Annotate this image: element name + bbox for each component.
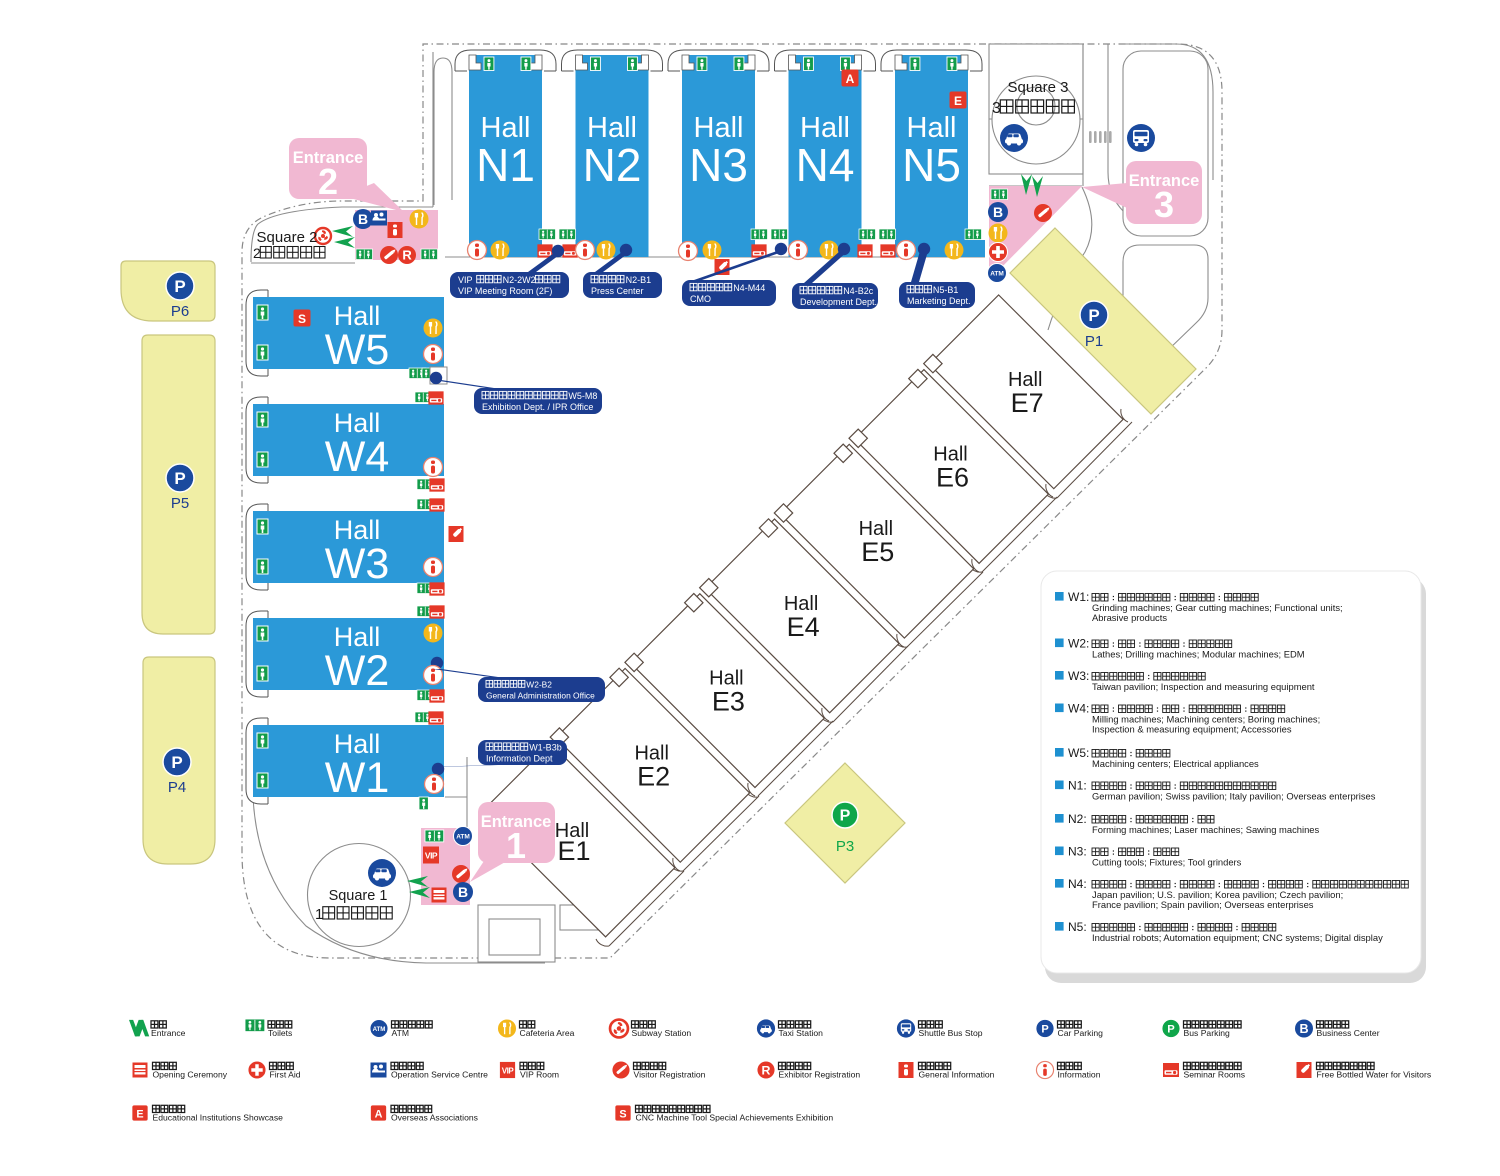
svg-text:W5-M8: W5-M8 — [568, 391, 597, 401]
svg-text:W5: W5 — [325, 326, 390, 374]
svg-text:Machining centers; Electrical: Machining centers; Electrical appliances — [1092, 758, 1259, 769]
svg-text:Development Dept.: Development Dept. — [800, 297, 877, 307]
svg-text:P5: P5 — [171, 495, 189, 512]
svg-text:Free Bottled Water for Visitor: Free Bottled Water for Visitors — [1317, 1070, 1432, 1080]
svg-text:N2:: N2: — [1068, 812, 1087, 826]
svg-text:P6: P6 — [171, 303, 189, 320]
svg-text:Car Parking: Car Parking — [1058, 1028, 1104, 1038]
svg-text:Forming machines; Laser machin: Forming machines; Laser machines; Sawing… — [1092, 824, 1319, 835]
svg-text:General Administration Office: General Administration Office — [486, 691, 595, 701]
svg-text:Square 1: Square 1 — [329, 888, 388, 904]
svg-text:Cutting tools; Fixtures; Tool: Cutting tools; Fixtures; Tool grinders — [1092, 857, 1242, 868]
svg-text:W2: W2 — [325, 647, 390, 695]
svg-text:Business Center: Business Center — [1317, 1028, 1380, 1038]
svg-text:N5:: N5: — [1068, 920, 1087, 934]
svg-text:1: 1 — [315, 906, 323, 923]
svg-text:P1: P1 — [1085, 333, 1103, 350]
svg-text:N4:: N4: — [1068, 877, 1087, 891]
svg-text:W1: W1 — [325, 754, 390, 802]
svg-text:N1: N1 — [476, 139, 535, 191]
svg-text:Exhibition Dept. / IPR Office: Exhibition Dept. / IPR Office — [482, 402, 593, 412]
svg-text:N5: N5 — [902, 139, 961, 191]
svg-text:E3: E3 — [712, 687, 745, 717]
svg-text:W5:: W5: — [1068, 746, 1089, 760]
svg-text:Entrance: Entrance — [151, 1028, 186, 1038]
svg-text:Information: Information — [1058, 1070, 1101, 1080]
svg-text:W4:: W4: — [1068, 702, 1089, 716]
svg-text:Educational Institutions Showc: Educational Institutions Showcase — [153, 1113, 284, 1123]
svg-text:E4: E4 — [787, 612, 820, 642]
svg-text:1: 1 — [506, 825, 526, 866]
svg-text:Overseas Associations: Overseas Associations — [391, 1113, 478, 1123]
svg-text:Taiwan pavilion; Inspection an: Taiwan pavilion; Inspection and measurin… — [1092, 681, 1315, 692]
svg-text:Shuttle Bus Stop: Shuttle Bus Stop — [919, 1028, 983, 1038]
svg-text:Lathes; Drilling machines; Mod: Lathes; Drilling machines; Modular machi… — [1092, 649, 1305, 660]
svg-text:W1-B3b: W1-B3b — [529, 742, 562, 752]
svg-text:3: 3 — [992, 100, 1001, 117]
svg-text:W1:: W1: — [1068, 590, 1089, 604]
svg-text:First Aid: First Aid — [270, 1070, 301, 1080]
svg-text:CMO: CMO — [690, 294, 711, 304]
svg-text:VIP Room: VIP Room — [520, 1070, 559, 1080]
svg-text:N4-B2c: N4-B2c — [843, 286, 874, 296]
svg-text:N2: N2 — [583, 139, 642, 191]
svg-text:CNC Machine Tool Special Achie: CNC Machine Tool Special Achievements Ex… — [636, 1113, 834, 1123]
svg-text:N5-B1: N5-B1 — [933, 285, 959, 295]
svg-text:E6: E6 — [936, 463, 969, 493]
svg-text:2: 2 — [318, 161, 338, 202]
svg-text:Cafeteria Area: Cafeteria Area — [520, 1028, 575, 1038]
svg-text:General Information: General Information — [919, 1070, 995, 1080]
svg-text:Square 2: Square 2 — [257, 229, 318, 246]
svg-text:Visitor Registration: Visitor Registration — [634, 1070, 706, 1080]
svg-text:W2:: W2: — [1068, 637, 1089, 651]
svg-text:Marketing Dept.: Marketing Dept. — [907, 296, 971, 306]
svg-text:VIP: VIP — [458, 275, 473, 285]
svg-text:N4-M44: N4-M44 — [733, 283, 765, 293]
svg-text:E5: E5 — [861, 537, 894, 567]
svg-text:E2: E2 — [637, 761, 670, 791]
svg-text:W3: W3 — [325, 540, 390, 588]
svg-text:Opening Ceremony: Opening Ceremony — [153, 1070, 228, 1080]
svg-text:Information Dept: Information Dept — [486, 754, 553, 764]
svg-text:W2-B2: W2-B2 — [526, 679, 552, 689]
svg-text:N3:: N3: — [1068, 845, 1087, 859]
svg-text:P4: P4 — [168, 779, 186, 796]
svg-text:E7: E7 — [1011, 388, 1044, 418]
svg-text:N2-2W2: N2-2W2 — [503, 275, 536, 285]
svg-text:Exhibitor Registration: Exhibitor Registration — [779, 1070, 861, 1080]
svg-text:3: 3 — [1154, 184, 1174, 225]
svg-text:Taxi Station: Taxi Station — [779, 1028, 824, 1038]
svg-text:P3: P3 — [836, 838, 854, 855]
svg-text:Seminar Rooms: Seminar Rooms — [1184, 1070, 1246, 1080]
svg-text:Industrial robots; Automation: Industrial robots; Automation equipment;… — [1092, 932, 1383, 943]
svg-text:Abrasive products: Abrasive products — [1092, 612, 1167, 623]
svg-text:Toilets: Toilets — [268, 1028, 292, 1038]
svg-text:N3: N3 — [689, 139, 748, 191]
svg-text:ATM: ATM — [392, 1028, 410, 1038]
svg-text:N2-B1: N2-B1 — [626, 275, 652, 285]
svg-text:France pavilion; Spain pavilio: France pavilion; Spain pavilion; Oversea… — [1092, 899, 1314, 910]
svg-text:Subway Station: Subway Station — [632, 1028, 692, 1038]
svg-text:E1: E1 — [557, 836, 590, 866]
svg-text:Bus Parking: Bus Parking — [1184, 1028, 1231, 1038]
svg-text:Inspection & measuring equipme: Inspection & measuring equipment; Access… — [1092, 724, 1292, 735]
svg-text:Press Center: Press Center — [591, 286, 644, 296]
svg-text:Operation Service Centre: Operation Service Centre — [391, 1070, 488, 1080]
svg-text:N4: N4 — [796, 139, 855, 191]
svg-text:N1:: N1: — [1068, 779, 1087, 793]
svg-text:VIP Meeting Room (2F): VIP Meeting Room (2F) — [458, 286, 552, 296]
svg-text:W4: W4 — [325, 433, 390, 481]
svg-text:German pavilion; Swiss pavilio: German pavilion; Swiss pavilion; Italy p… — [1092, 791, 1376, 802]
svg-text:W3:: W3: — [1068, 669, 1089, 683]
svg-text:Square 3: Square 3 — [1008, 79, 1069, 96]
